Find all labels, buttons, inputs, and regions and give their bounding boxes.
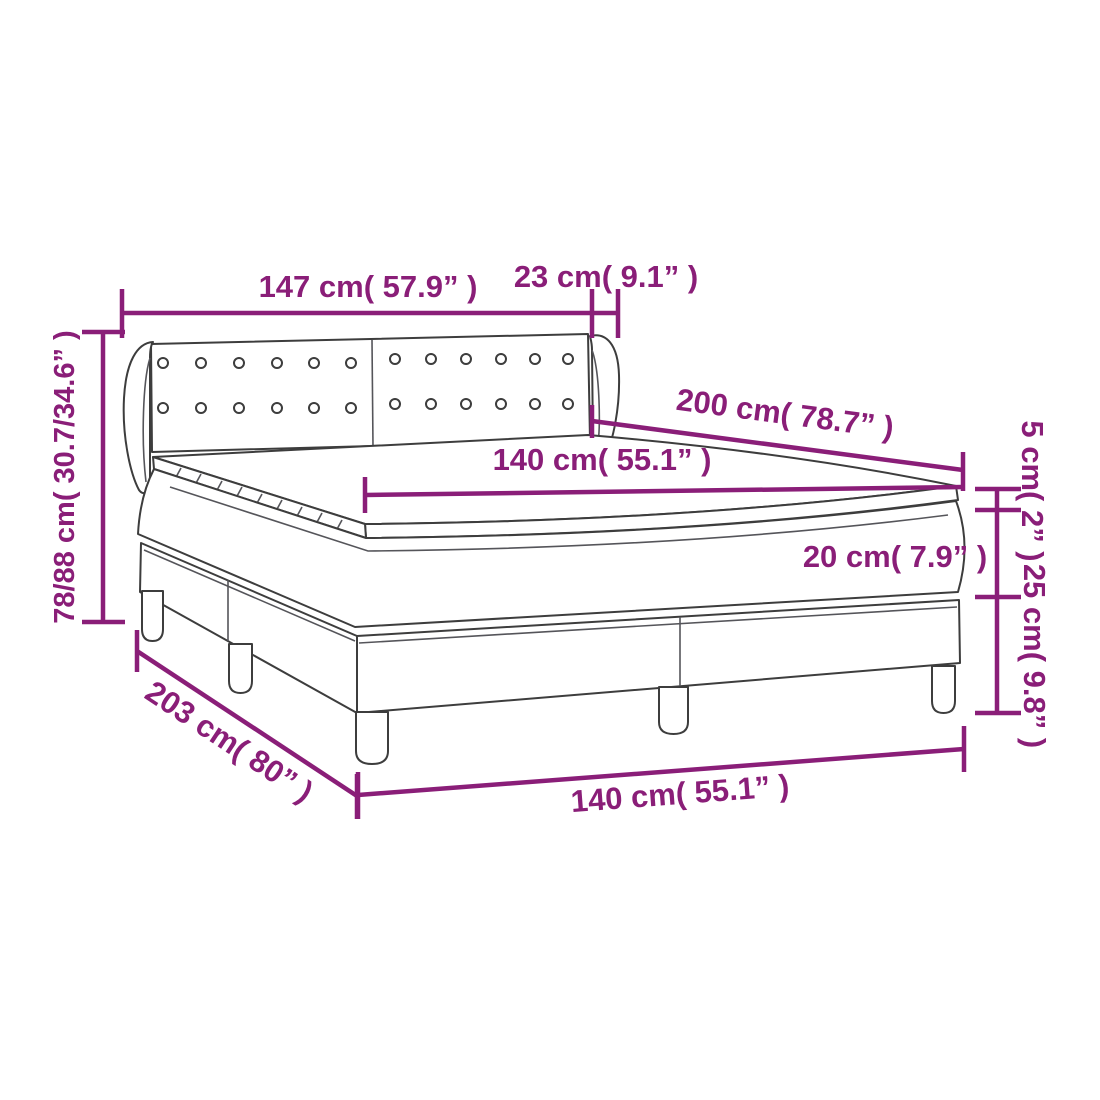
headboard-button — [390, 399, 400, 409]
headboard-button — [563, 399, 573, 409]
headboard-button — [426, 354, 436, 364]
frame-length-label: 203 cm( 80” ) — [139, 674, 319, 810]
headboard-button — [426, 399, 436, 409]
bed-leg — [932, 666, 955, 713]
headboard-button — [496, 399, 506, 409]
dim-headboard-width: 147 cm( 57.9” ) 23 cm( 9.1” ) — [122, 259, 698, 338]
headboard-button — [158, 403, 168, 413]
headboard-button — [461, 354, 471, 364]
dim-bed-width-bottom: 140 cm( 55.1” ) — [358, 726, 964, 819]
headboard-button — [234, 358, 244, 368]
base-height-label: 25 cm( 9.8” ) — [1017, 564, 1052, 748]
headboard-button — [496, 354, 506, 364]
mattress-width-top-label: 140 cm( 55.1” ) — [493, 442, 712, 477]
headboard-button — [272, 358, 282, 368]
headboard-button — [309, 403, 319, 413]
bed-dimension-diagram: 147 cm( 57.9” ) 23 cm( 9.1” ) 78/88 cm( … — [0, 0, 1100, 1100]
bed-leg — [142, 591, 163, 641]
headboard-button — [196, 403, 206, 413]
headboard-button — [346, 358, 356, 368]
headboard-width-label: 147 cm( 57.9” ) — [259, 269, 478, 304]
headboard-button — [390, 354, 400, 364]
headboard-button — [530, 354, 540, 364]
headboard-button — [461, 399, 471, 409]
headboard-button — [272, 403, 282, 413]
headboard-button — [563, 354, 573, 364]
headboard-panel-divider — [372, 340, 373, 447]
bed-leg — [229, 644, 252, 693]
bed-leg — [659, 687, 688, 734]
topper-thickness-label: 5 cm( 2” ) — [1015, 420, 1050, 561]
dim-total-height: 78/88 cm( 30.7/34.6” ) — [49, 330, 125, 623]
wing-depth-label: 23 cm( 9.1” ) — [514, 259, 698, 294]
mattress-thickness-label: 20 cm( 7.9” ) — [803, 539, 987, 574]
headboard-button — [530, 399, 540, 409]
headboard-button — [346, 403, 356, 413]
headboard-button — [158, 358, 168, 368]
total-height-label: 78/88 cm( 30.7/34.6” ) — [49, 330, 81, 623]
headboard-panel — [151, 334, 590, 452]
bed-leg — [356, 712, 388, 764]
dimension-diagram-canvas: 147 cm( 57.9” ) 23 cm( 9.1” ) 78/88 cm( … — [0, 0, 1100, 1100]
headboard-button — [309, 358, 319, 368]
headboard-button — [196, 358, 206, 368]
headboard-button — [234, 403, 244, 413]
